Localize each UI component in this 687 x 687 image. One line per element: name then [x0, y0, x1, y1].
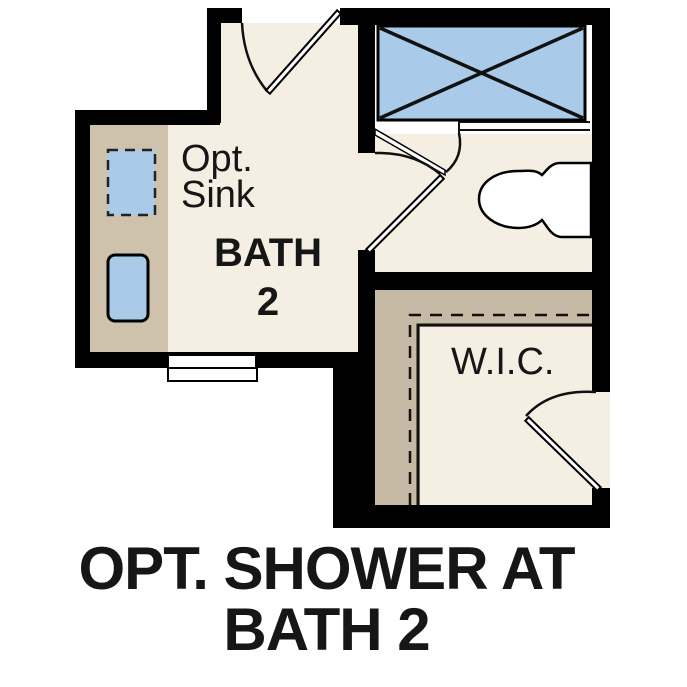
- wall-segment: [333, 505, 610, 528]
- cased-opening-outer: [168, 355, 256, 368]
- bath2-entry-floor: [221, 23, 358, 125]
- wall-segment: [592, 8, 610, 392]
- cased-opening: [168, 355, 257, 381]
- wall-segment: [75, 110, 220, 125]
- wall-segment: [75, 110, 90, 368]
- shower-icon: [378, 26, 585, 120]
- wall-segment: [207, 8, 242, 23]
- room-label-wic: W.I.C.: [451, 342, 554, 382]
- sink-icon: [108, 255, 148, 321]
- wall-segment: [358, 25, 375, 153]
- cased-opening-inner: [168, 368, 257, 381]
- bath2-label-line1: BATH: [198, 229, 338, 278]
- opt-sink-line1: Opt.: [181, 141, 255, 177]
- wall-segment: [358, 290, 375, 508]
- opt-sink-annotation: Opt. Sink: [181, 141, 255, 213]
- bath2-label-line2: 2: [198, 278, 338, 327]
- floorplan-image: Opt. Sink BATH 2 W.I.C. OPT. SHOWER AT B…: [0, 0, 687, 687]
- wall-segment: [207, 8, 221, 123]
- plan-caption: OPT. SHOWER AT BATH 2: [0, 538, 653, 660]
- wall-segment: [340, 8, 610, 25]
- toilet-doorway-floor: [358, 153, 375, 250]
- caption-line2: BATH 2: [0, 599, 653, 660]
- wall-segment: [358, 272, 610, 290]
- opt-sink-line2: Sink: [181, 177, 255, 213]
- caption-line1: OPT. SHOWER AT: [0, 538, 653, 599]
- optional-sink-icon: [108, 150, 155, 215]
- room-label-bath2: BATH 2: [198, 229, 338, 327]
- wic-doorway-floor: [592, 392, 610, 488]
- wic-label-text: W.I.C.: [451, 342, 554, 382]
